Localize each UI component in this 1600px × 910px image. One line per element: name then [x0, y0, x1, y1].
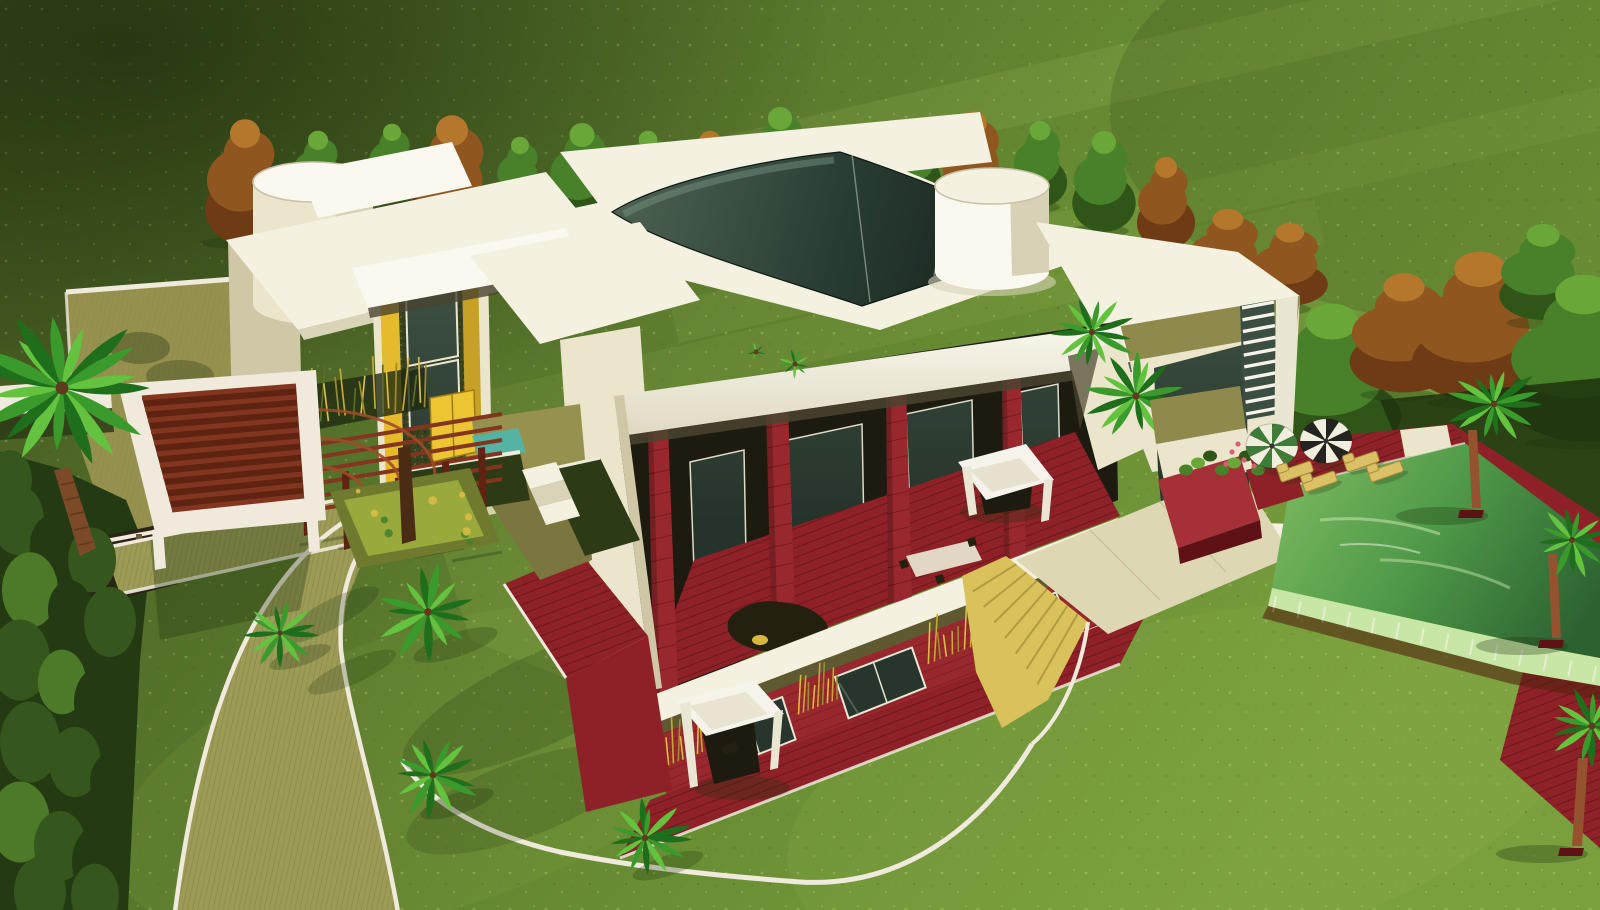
- tree-canopy: [1306, 304, 1358, 340]
- cabana-shadow: [694, 776, 790, 800]
- flower: [1223, 461, 1228, 466]
- palm-base: [1458, 510, 1484, 518]
- tree-canopy: [436, 115, 468, 146]
- foliage-dot: [427, 512, 434, 519]
- tree-canopy: [569, 123, 594, 147]
- palm-base: [1538, 640, 1564, 648]
- planter-greenery: [1179, 465, 1193, 476]
- palm-crown-center: [754, 350, 759, 355]
- planter-greenery: [1227, 458, 1241, 469]
- flower: [1241, 457, 1246, 462]
- tree-canopy: [1276, 223, 1305, 243]
- cushion: [752, 635, 768, 645]
- tree-canopy: [1454, 251, 1506, 287]
- planter-greenery: [1203, 451, 1217, 462]
- foliage-dot: [356, 489, 361, 494]
- tree-canopy: [1092, 131, 1116, 154]
- foliage-dot: [371, 510, 378, 517]
- palm-crown-center: [1491, 401, 1498, 408]
- render-canvas: [0, 0, 1600, 910]
- palm-crown-center: [1132, 392, 1139, 399]
- architectural-render: Aerial bird's-eye CGI rendering of a mod…: [0, 0, 1600, 910]
- foliage-dot: [465, 513, 472, 520]
- tree-canopy: [230, 119, 260, 148]
- foliage-dot: [459, 492, 465, 498]
- tree-canopy: [1030, 121, 1051, 141]
- tree-canopy: [511, 137, 529, 154]
- tree-canopy: [768, 107, 792, 130]
- palm-crown-center: [1569, 537, 1575, 543]
- tree-canopy: [1383, 273, 1424, 301]
- rooftop-water-tank: [928, 168, 1056, 296]
- flower: [1229, 449, 1234, 454]
- parasol-hub: [1323, 438, 1328, 443]
- parasol-hub: [1269, 443, 1274, 448]
- reed-stalk: [827, 678, 828, 703]
- tree-canopy: [1213, 209, 1244, 230]
- palm-crown-center: [1089, 329, 1095, 335]
- forest-conifer: [84, 587, 136, 657]
- tank-top: [935, 168, 1049, 204]
- palm-crown-center: [424, 608, 432, 616]
- tree-canopy: [1526, 224, 1559, 247]
- tree-canopy: [1155, 157, 1177, 178]
- foliage-dot: [456, 526, 462, 532]
- foliage-dot: [381, 516, 388, 523]
- foliage-dot: [428, 496, 437, 505]
- flower: [1235, 441, 1240, 446]
- planter-greenery: [1191, 458, 1205, 469]
- forest-conifer: [90, 752, 134, 811]
- forest-conifer: [74, 667, 126, 737]
- foliage-dot: [395, 540, 401, 546]
- foliage-dot: [466, 538, 473, 545]
- tree-canopy: [383, 124, 401, 141]
- tree-canopy: [308, 131, 328, 150]
- palm-crown-center: [1589, 723, 1596, 730]
- foliage-dot: [384, 529, 392, 537]
- flower: [1251, 463, 1256, 468]
- palm-crown-center: [56, 382, 69, 395]
- palm-crown-center: [430, 772, 437, 779]
- palm-crown-center: [793, 362, 798, 367]
- palm-crown-center: [642, 835, 648, 841]
- foliage-dot: [462, 527, 470, 535]
- palm-base: [1558, 848, 1584, 856]
- palm-crown-center: [277, 630, 283, 636]
- foliage-dot: [353, 515, 361, 523]
